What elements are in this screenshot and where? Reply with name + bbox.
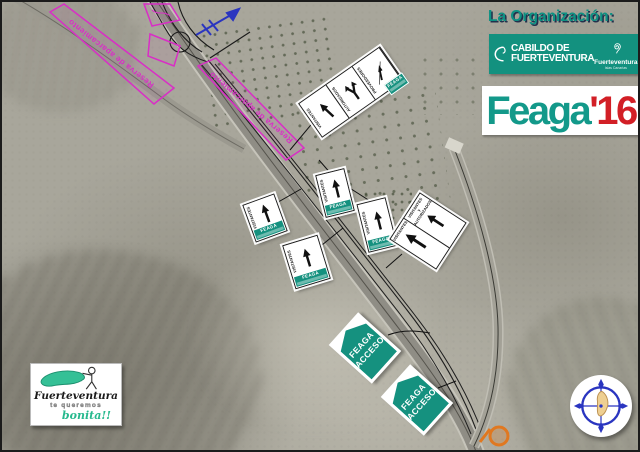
up-arrow-icon [424, 212, 446, 231]
feaga-logo-year: '16 [589, 89, 636, 133]
feaga16-logo: Feaga'16 [482, 86, 640, 135]
bonita-line1: Fuerteventura [33, 391, 119, 402]
blue-route-arrow-icon [196, 9, 239, 35]
island-carrier-doodle-icon [33, 365, 119, 391]
cabildo-emblem-icon [493, 44, 508, 64]
fuerteventura-tagline: Islas Canarias [594, 66, 637, 70]
fuerteventura-brand-name: Fuerteventura [594, 59, 637, 66]
cabildo-banner: CABILDO DE FUERTEVENTURA Fuerteventura I… [489, 34, 640, 74]
bonita-line3: bonita!! [33, 410, 119, 421]
island-silhouette-icon [597, 392, 608, 416]
feaga-logo-name: Feaga [486, 89, 589, 133]
organizacion-title: La Organización: [488, 8, 640, 26]
fuerteventura-bonita-logo: Fuerteventura te queremos bonita!! [30, 363, 122, 426]
cabildo-logo: CABILDO DE FUERTEVENTURA [493, 44, 594, 64]
feaga-access-map-poster: Reserva de aparcamiento Reserva de aparc… [0, 0, 640, 452]
compass-island-logo [570, 375, 632, 437]
fuerteventura-tourism-logo: Fuerteventura Islas Canarias [594, 39, 637, 70]
crosshair-compass-icon [572, 377, 630, 435]
fuerteventura-spiral-icon [608, 39, 624, 54]
cabildo-line2: FUERTEVENTURA [511, 53, 594, 64]
